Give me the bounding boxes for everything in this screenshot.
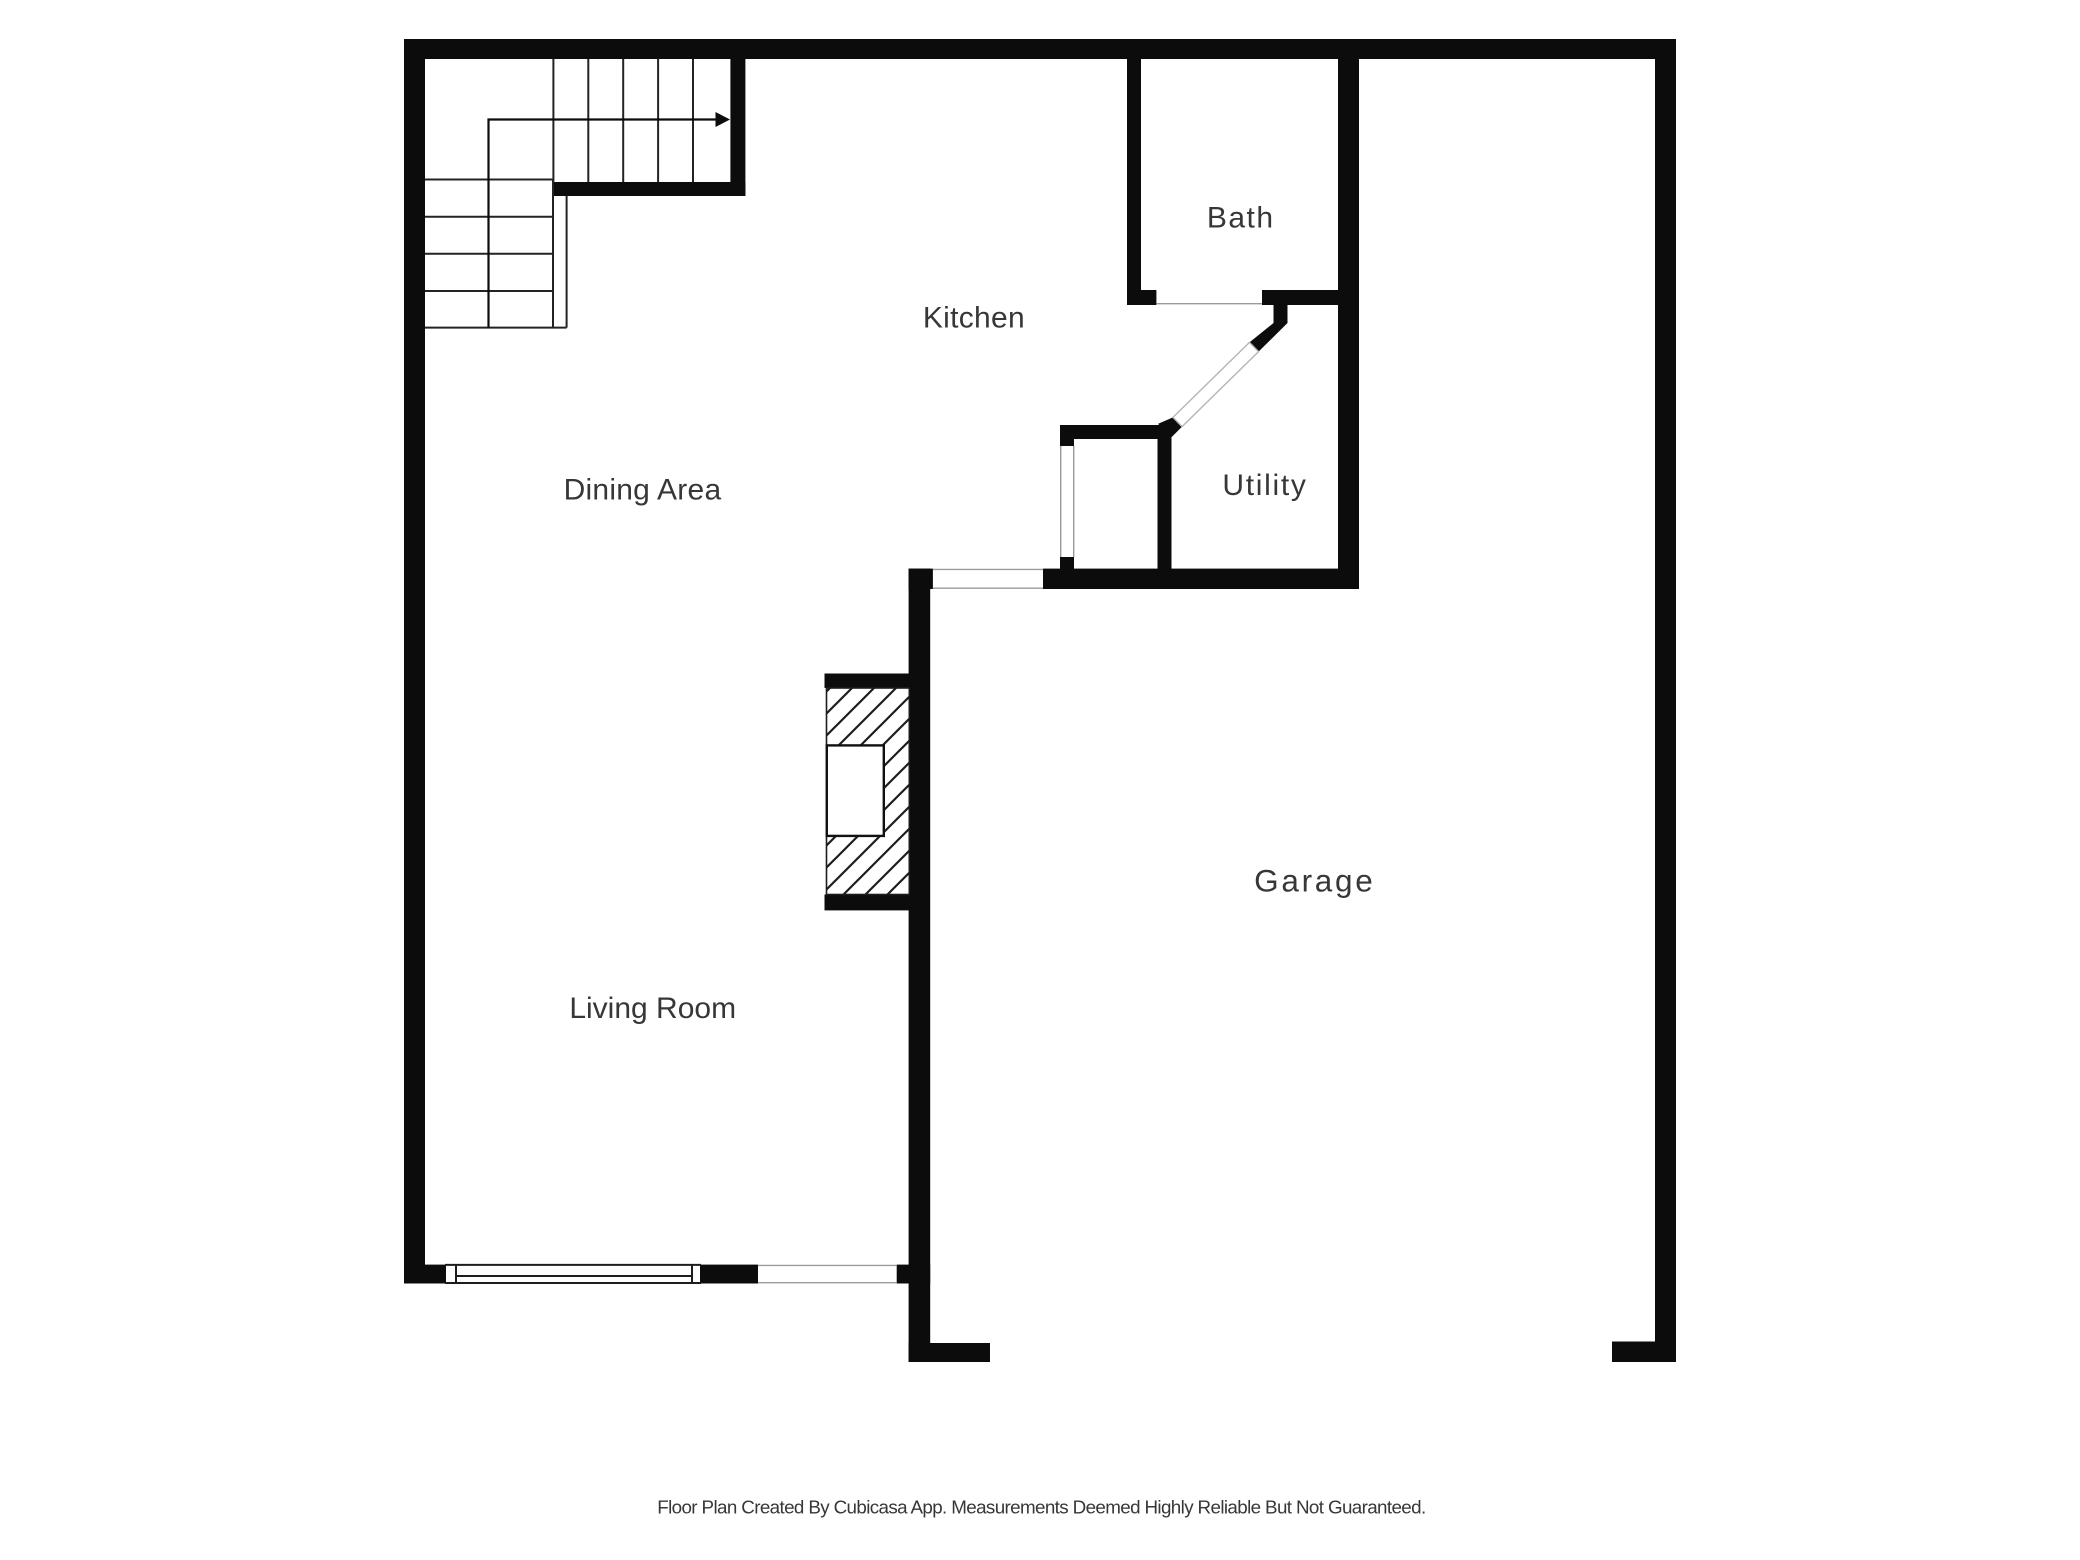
- svg-text:Garage: Garage: [1254, 863, 1375, 899]
- svg-text:Floor Plan Created By Cubicasa: Floor Plan Created By Cubicasa App. Meas…: [657, 1497, 1425, 1518]
- svg-text:Dining Area: Dining Area: [564, 473, 722, 506]
- svg-text:Kitchen: Kitchen: [923, 302, 1025, 335]
- svg-text:Living Room: Living Room: [569, 992, 736, 1025]
- svg-text:Bath: Bath: [1207, 201, 1275, 234]
- svg-text:Utility: Utility: [1222, 469, 1307, 502]
